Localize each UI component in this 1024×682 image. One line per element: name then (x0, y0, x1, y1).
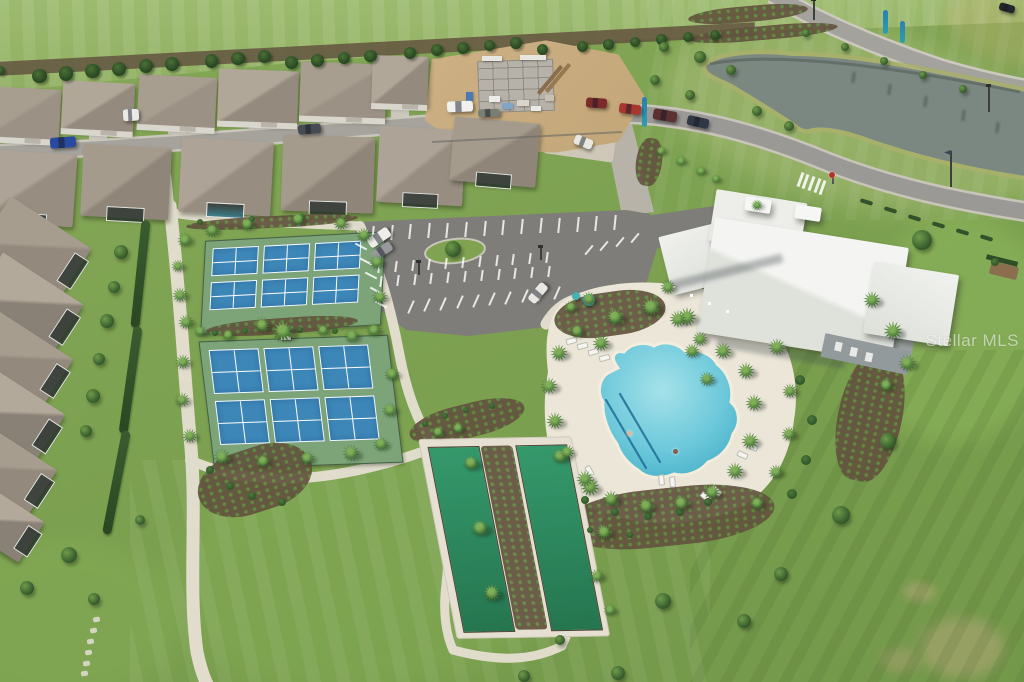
field-tree (0, 66, 5, 75)
tree (752, 106, 762, 116)
tree (685, 90, 695, 100)
shrub (278, 498, 286, 506)
tree (555, 635, 565, 645)
tree (108, 281, 120, 293)
shrub (248, 492, 256, 500)
porch-column (690, 294, 693, 297)
tree (880, 433, 896, 449)
feather-flag-banner (642, 97, 647, 127)
field-tree (258, 50, 271, 63)
stop-sign (829, 172, 835, 178)
screened-lanai (475, 171, 513, 189)
field-tree (231, 52, 244, 65)
tree (445, 241, 461, 257)
house-roof (371, 55, 429, 107)
house-roof (178, 138, 274, 217)
shrub (787, 489, 797, 499)
pickleball-court (318, 344, 373, 390)
field-tree (59, 66, 74, 81)
light-pole (540, 247, 542, 260)
light-pole (418, 262, 420, 275)
tree (841, 43, 849, 51)
shrub (206, 466, 214, 474)
construction-material (520, 55, 546, 60)
field-tree (364, 50, 376, 62)
light-pole-head (416, 260, 421, 263)
tree (650, 75, 660, 85)
tree (61, 547, 77, 563)
flagpole (950, 151, 952, 187)
construction-material (517, 100, 529, 106)
field-tree (577, 41, 588, 52)
shrub (611, 508, 619, 516)
tree (959, 85, 967, 93)
clubhouse-door (865, 352, 874, 362)
tree (80, 425, 92, 437)
porch-column (726, 310, 729, 313)
aerial-photo-community-amenity-center: Stellar MLS (0, 0, 1024, 682)
shrub (587, 527, 593, 533)
garage-door (179, 126, 195, 132)
lounge-chair (669, 476, 676, 487)
walkway-bocce-south (453, 646, 562, 658)
garage-door (261, 122, 277, 128)
tree (518, 670, 530, 682)
pickleball-court (262, 243, 310, 273)
screened-lanai (402, 192, 439, 209)
house-roof (449, 116, 540, 187)
tree (832, 506, 850, 524)
field-tree (404, 47, 416, 59)
field-tree (112, 62, 126, 76)
pickleball-court (270, 397, 325, 443)
pickleball-court (263, 346, 318, 392)
swimmer (627, 431, 632, 436)
tree (135, 515, 145, 525)
tree (86, 389, 100, 403)
car (478, 109, 500, 118)
screened-lanai (106, 206, 144, 223)
tree (93, 353, 105, 365)
shrub (795, 375, 805, 385)
field-tree (311, 54, 324, 67)
tree (802, 29, 810, 37)
car (447, 101, 473, 113)
shrub (489, 403, 495, 409)
clubhouse-door (834, 341, 843, 351)
tree (694, 51, 706, 63)
field-tree (139, 59, 153, 73)
car (123, 109, 140, 122)
field-tree (457, 42, 469, 54)
field-tree (710, 30, 720, 40)
field-tree (205, 54, 219, 68)
house-roof (137, 74, 218, 130)
shrub (807, 415, 817, 425)
tree (20, 581, 34, 595)
tree (88, 593, 100, 605)
car (586, 97, 608, 108)
shrub (332, 328, 338, 334)
pickleball-court (209, 280, 257, 310)
tree (919, 71, 927, 79)
garage-door (402, 104, 418, 110)
pickleball-court (211, 246, 259, 276)
house-roof (281, 134, 376, 213)
shrub (581, 496, 589, 504)
lounge-chair (658, 474, 665, 485)
car (298, 123, 322, 135)
construction-material (502, 103, 513, 109)
field-tree (165, 57, 179, 71)
mls-watermark: Stellar MLS (926, 331, 1019, 351)
pickleball-court (261, 277, 309, 307)
shrub (226, 482, 234, 490)
screened-lanai (205, 202, 245, 219)
pickleball-court (314, 241, 362, 271)
shrub (422, 421, 428, 427)
pickleball-court (312, 275, 360, 305)
field-tree (431, 44, 443, 56)
shrub (991, 258, 999, 266)
tree (655, 593, 671, 609)
house-roof (217, 69, 299, 126)
garage-door (25, 138, 41, 144)
tree (784, 121, 794, 131)
light-pole-head (986, 84, 991, 87)
light-pole-head (811, 0, 816, 1)
field-tree (32, 69, 47, 84)
shrub (801, 455, 811, 465)
house-roof (80, 144, 172, 221)
shrub (242, 328, 248, 334)
light-pole (813, 0, 815, 20)
construction-material (531, 106, 541, 111)
tree (726, 65, 736, 75)
patio-umbrella (572, 292, 580, 300)
tree (880, 57, 888, 65)
pickleball-court (215, 399, 270, 445)
construction-material (489, 96, 500, 102)
tree (100, 314, 114, 328)
construction-material (482, 56, 502, 61)
feather-flag-banner (900, 21, 905, 43)
field-tree (603, 39, 614, 50)
field-tree (510, 37, 521, 48)
swimmer (673, 449, 678, 454)
garage-door (346, 117, 362, 123)
light-pole-head (538, 245, 543, 248)
pickleball-court (209, 348, 264, 394)
field-tree (85, 64, 99, 78)
tree (737, 614, 751, 628)
garage-door (100, 130, 116, 136)
feather-flag-banner (883, 10, 888, 34)
walkway-main (170, 206, 207, 682)
light-pole (988, 86, 990, 112)
construction-material (545, 95, 554, 101)
porch-column (708, 302, 711, 305)
clubhouse-door (849, 347, 858, 357)
shrub (197, 219, 203, 225)
car (50, 136, 77, 149)
shrub (442, 413, 448, 419)
tree (611, 666, 625, 680)
field-tree (285, 56, 298, 69)
shrub (212, 330, 218, 336)
tree (114, 245, 128, 259)
house-roof (0, 86, 61, 142)
shrub (627, 532, 633, 538)
pickleball-court (324, 395, 379, 441)
house-roof (61, 80, 136, 134)
tree (912, 230, 932, 250)
tree (659, 42, 669, 52)
tree (774, 567, 788, 581)
shrub (463, 407, 469, 413)
